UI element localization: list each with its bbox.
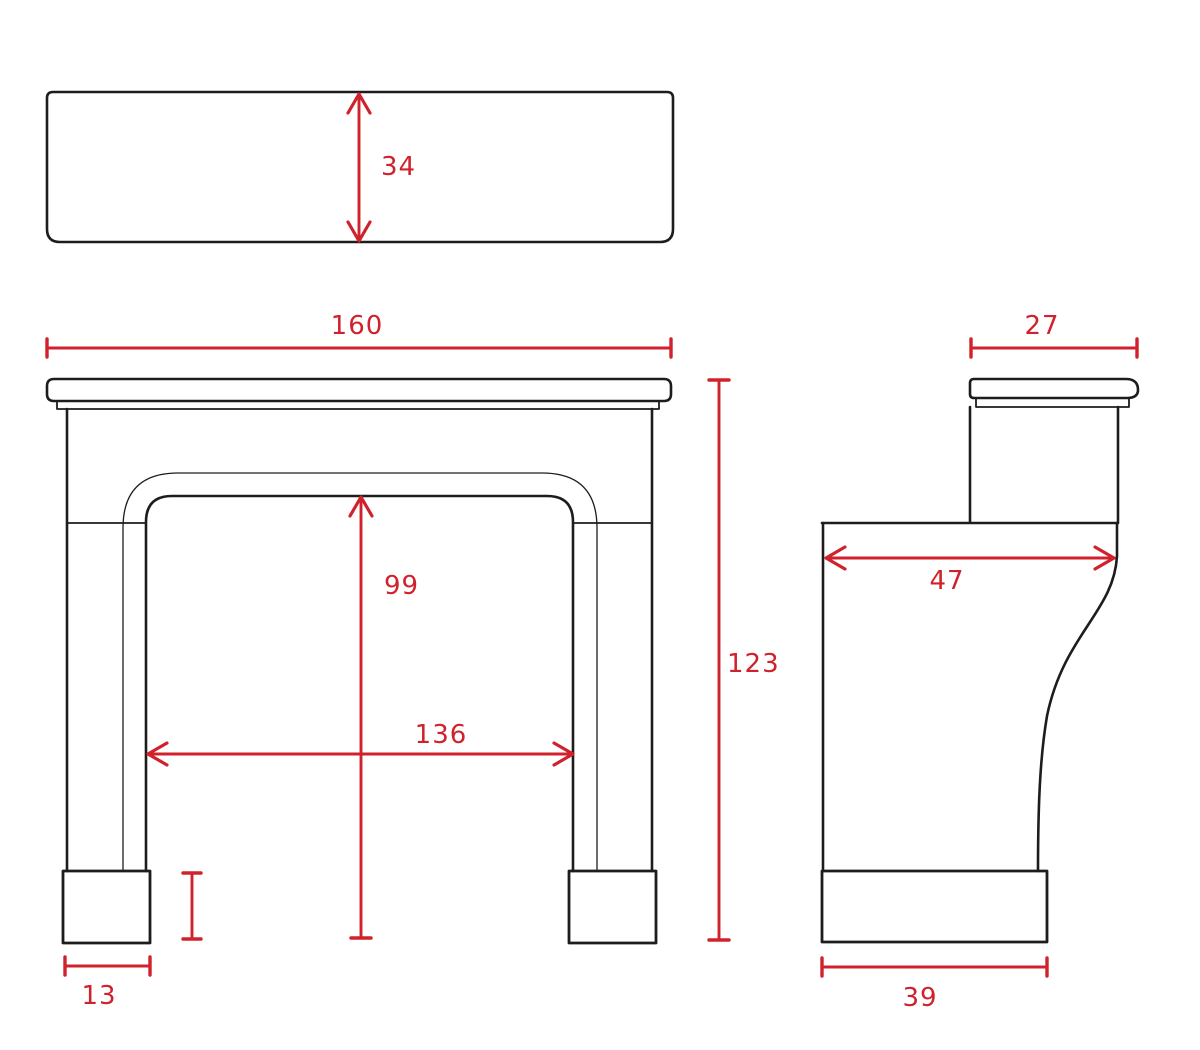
outline-strokes: [47, 92, 1138, 943]
dim-label-opening-width: 136: [415, 720, 468, 750]
dim-label-overall-width: 160: [331, 311, 384, 341]
dimension-labels: 34 160 27 99 123 136 47 13 39: [81, 152, 1059, 1013]
dim-label-foot-width: 13: [81, 981, 116, 1011]
technical-drawing-canvas: 34 160 27 99 123 136 47 13 39: [0, 0, 1200, 1050]
dim-label-overall-height: 123: [727, 649, 780, 679]
front-opening-arch-inner: [146, 496, 573, 871]
side-plinth-block: [822, 871, 1047, 942]
side-shelf-molding: [976, 398, 1129, 407]
dim-label-side-base-depth: 39: [902, 983, 937, 1013]
dim-label-opening-height: 99: [384, 571, 419, 601]
fireplace-dimension-drawing: 34 160 27 99 123 136 47 13 39: [0, 0, 1200, 1050]
front-left-foot-block: [63, 871, 150, 943]
dimension-lines: [47, 94, 1137, 976]
dim-label-side-body-depth: 47: [929, 566, 964, 596]
side-shelf-outline: [970, 379, 1138, 398]
side-body-front-curve: [1038, 523, 1117, 871]
dim-label-shelf-depth: 34: [381, 152, 416, 182]
front-shelf-outline: [47, 379, 671, 401]
dim-label-side-shelf-depth: 27: [1024, 311, 1059, 341]
front-right-foot-block: [569, 871, 656, 943]
